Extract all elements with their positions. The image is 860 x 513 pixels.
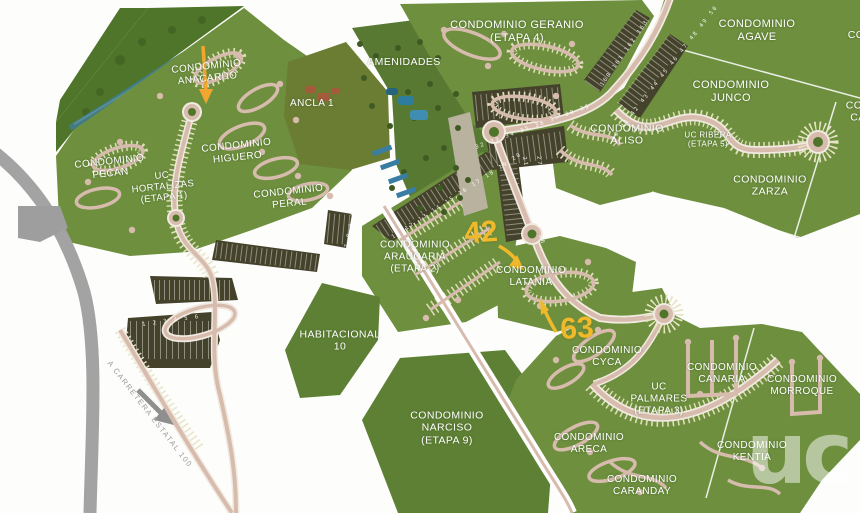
area-label-canaria: CONDOMINIO CANARIA bbox=[681, 362, 763, 386]
area-label-palmares: UC PALMARES (ETAPA 3) bbox=[629, 381, 689, 416]
area-label-agave: CONDOMINIO AGAVE bbox=[711, 18, 803, 44]
lot-63-callout: 63 bbox=[559, 311, 595, 347]
area-label-areca: CONDOMINIO ARECA bbox=[548, 432, 630, 456]
area-label-geranio: CONDOMINIO GERANIO (ETAPA 4) bbox=[445, 19, 590, 45]
area-label-edge-right-mid: CON CA bbox=[841, 100, 860, 125]
area-label-ribera: UC RIBERA (ETAPA 5) bbox=[682, 131, 734, 150]
area-label-edge-right-top: CO bbox=[836, 29, 860, 41]
area-label-araucaria: CONDOMINIO ARAUCARIA (ETAPA 2) bbox=[375, 239, 455, 274]
area-label-junco: CONDOMINIO JUNCO bbox=[685, 79, 777, 105]
area-label-caranday: CONDOMINIO CARANDAY bbox=[597, 474, 687, 498]
area-label-cyca: CONDOMINIO CYCA bbox=[565, 345, 650, 369]
pool bbox=[398, 96, 414, 105]
area-label-narciso: CONDOMINIO NARCISO (ETAPA 9) bbox=[405, 409, 490, 446]
area-label-ancla: ANCLA 1 bbox=[272, 98, 352, 110]
area-label-habitacional10: HABITACIONAL 10 bbox=[295, 329, 385, 354]
area-label-morroque: CONDOMINIO MORROQUE bbox=[757, 374, 847, 398]
area-label-amenidades: AMENIDADES bbox=[349, 56, 459, 68]
area-label-zarza: CONDOMINIO ZARZA bbox=[724, 174, 816, 199]
master-plan-map: CONDOMINIO ANACARDO CONDOMINIO PECÁN CON… bbox=[0, 0, 860, 513]
developer-watermark: uc bbox=[746, 404, 848, 504]
lot-42-callout: 42 bbox=[463, 215, 499, 251]
area-label-latania: CONDOMINIO LATANIA bbox=[490, 265, 572, 289]
